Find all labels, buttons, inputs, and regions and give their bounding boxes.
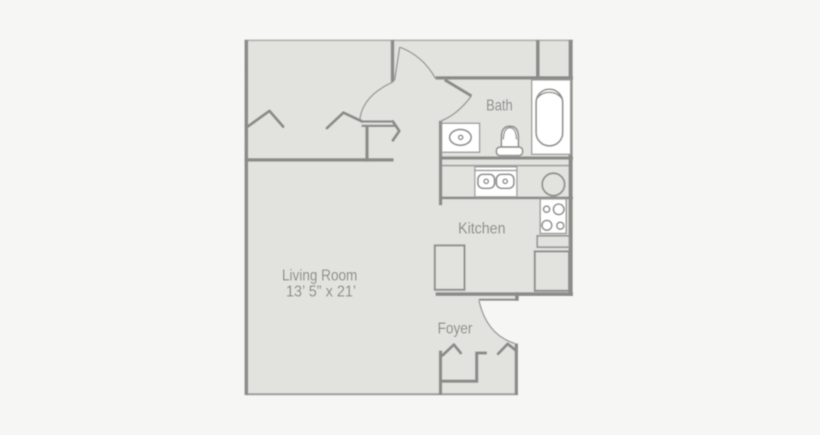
svg-text:Foyer: Foyer — [438, 321, 473, 338]
svg-text:Bath: Bath — [486, 98, 513, 115]
svg-text:Living Room: Living Room — [282, 267, 357, 284]
svg-text:13’ 5” x 21’: 13’ 5” x 21’ — [286, 284, 356, 301]
svg-text:Kitchen: Kitchen — [458, 221, 505, 238]
